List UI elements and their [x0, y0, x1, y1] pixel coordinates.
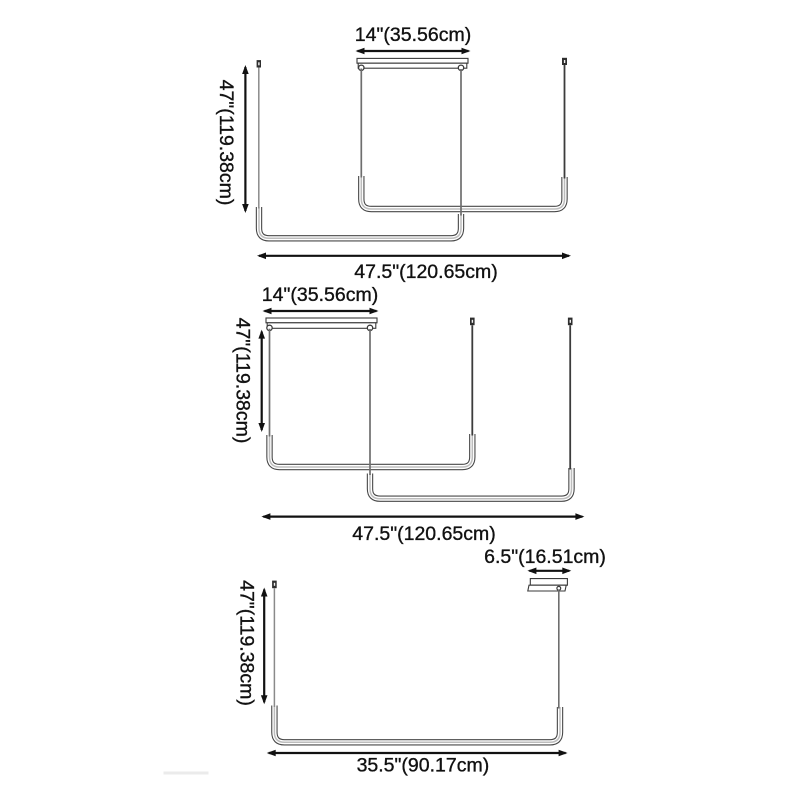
svg-text:35.5"(90.17cm): 35.5"(90.17cm): [357, 755, 490, 777]
svg-text:47"(119.38cm): 47"(119.38cm): [236, 580, 258, 706]
svg-text:47.5"(120.65cm): 47.5"(120.65cm): [352, 523, 496, 545]
svg-text:6.5"(16.51cm): 6.5"(16.51cm): [484, 546, 606, 568]
svg-text:14"(35.56cm): 14"(35.56cm): [262, 284, 378, 306]
svg-text:47"(119.38cm): 47"(119.38cm): [232, 318, 254, 444]
svg-text:47.5"(120.65cm): 47.5"(120.65cm): [354, 261, 498, 283]
svg-text:14"(35.56cm): 14"(35.56cm): [355, 24, 471, 46]
svg-text:47"(119.38cm): 47"(119.38cm): [215, 80, 237, 206]
